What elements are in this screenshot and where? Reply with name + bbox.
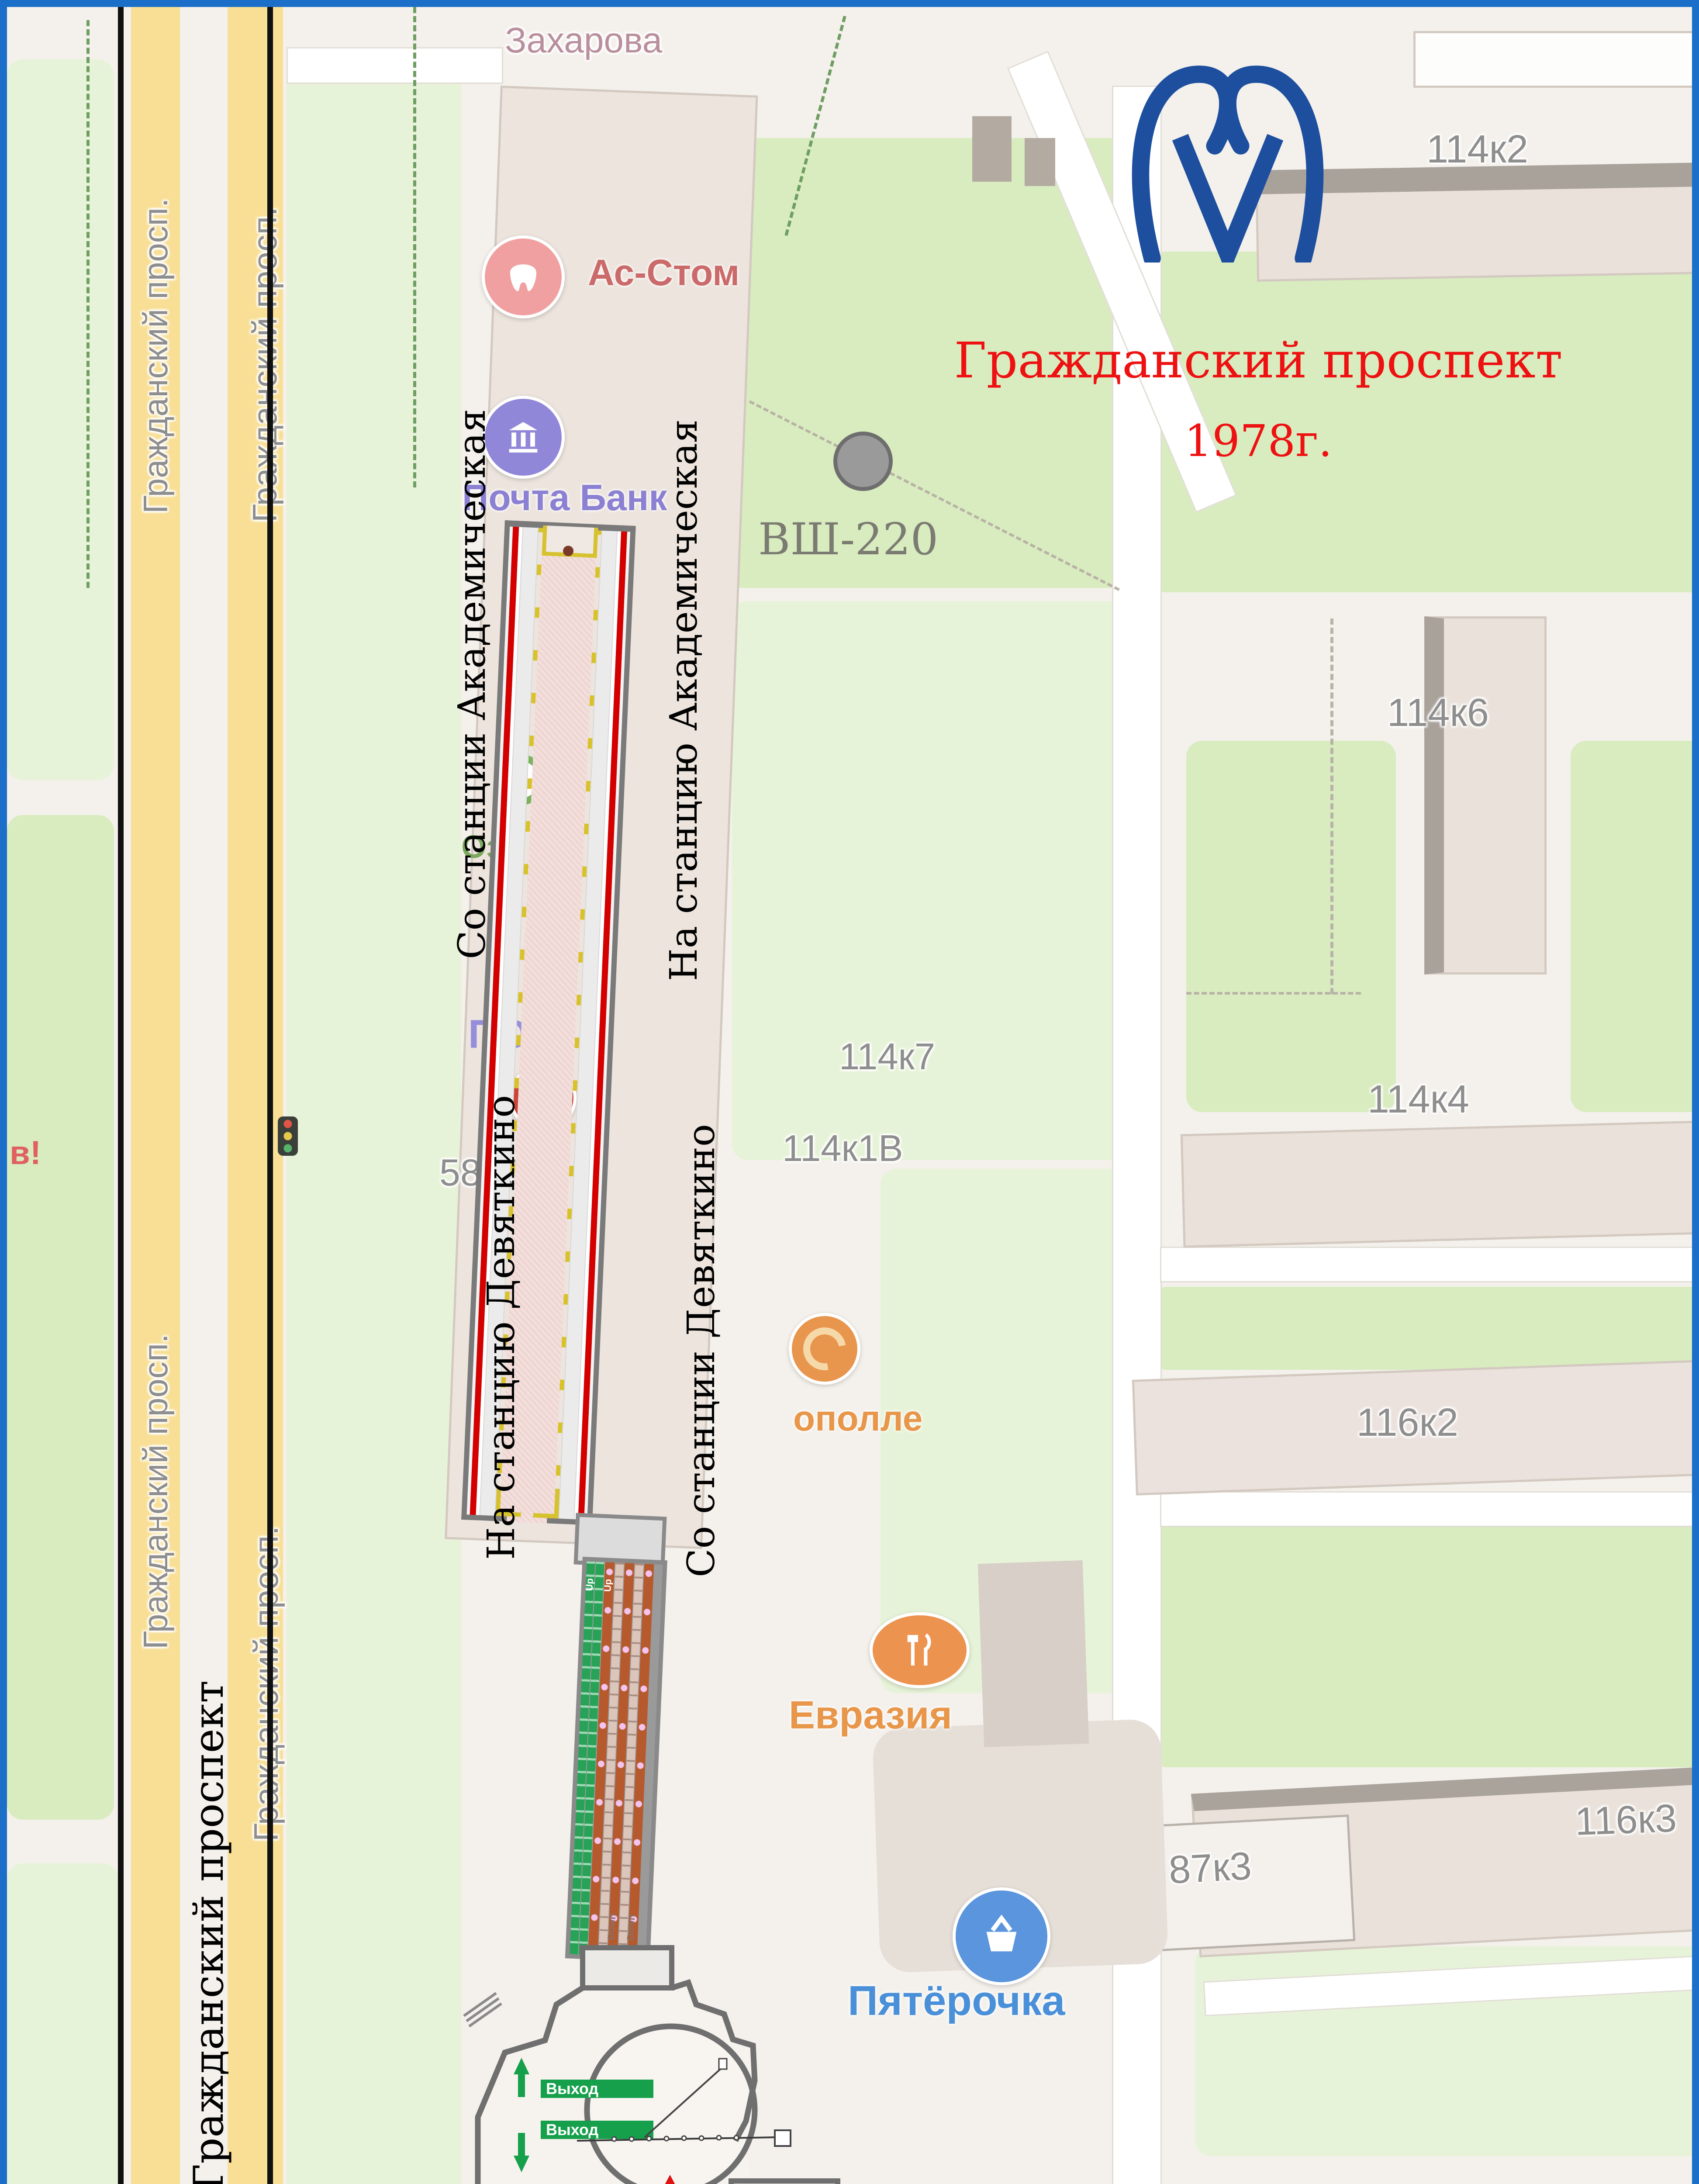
- traffic-light-icon: [278, 1116, 298, 1156]
- metro-logo: [1119, 64, 1337, 263]
- basket-icon: [977, 1912, 1026, 1960]
- park-area: [1186, 741, 1396, 1112]
- building-label-87k3: 87к3: [1167, 1844, 1253, 1893]
- park-area: [1151, 1523, 1699, 1767]
- opolle-icon: [789, 1313, 860, 1385]
- zakharova-road: [287, 47, 503, 84]
- ticket-hall-circle: [587, 2026, 755, 2184]
- building-label-116k2: 116к2: [1357, 1400, 1458, 1445]
- escalator-up-label: Up: [602, 1579, 614, 1592]
- park-area: [7, 1863, 118, 2184]
- exit-bar-lower-label: Выход: [546, 2121, 598, 2139]
- building-label-114k4: 114к4: [1367, 1077, 1469, 1122]
- street-label-grazhdansky-1: Гражданский просп.: [136, 77, 176, 514]
- boundary-dashed: [1330, 619, 1333, 994]
- evraziya-icon: [870, 1612, 970, 1688]
- pyaterochka-icon: [953, 1887, 1050, 1985]
- evraziya-label: Евразия: [789, 1693, 952, 1738]
- park-area: [1571, 741, 1699, 1112]
- shed: [1025, 138, 1055, 186]
- track-label-from-devyatkino: Со станции Девяткино: [680, 1160, 723, 1577]
- side-road: [1160, 1247, 1699, 1282]
- street-label-zakharova: Захарова: [505, 20, 662, 61]
- park-path-dashed: [1186, 992, 1361, 995]
- building-evraziya: [978, 1560, 1089, 1747]
- road-edge-line: [118, 7, 124, 2184]
- bank-icon: [504, 418, 542, 456]
- building-label-116k3: 116к3: [1574, 1796, 1677, 1845]
- vestibule-plan: Выход Выход Вход: [444, 1935, 859, 2184]
- building-label-114k1v: 114к1В: [782, 1127, 903, 1170]
- opolle-glyph: [795, 1319, 854, 1379]
- station-title: Гражданский проспект: [946, 332, 1571, 389]
- pyaterochka-label: Пятёрочка: [848, 1977, 1065, 2025]
- turnstile-booth: [775, 2130, 791, 2146]
- street-label-grazhdansky-4: Гражданский просп.: [246, 1387, 286, 1842]
- park-area: [7, 815, 114, 1820]
- park-area: [287, 81, 461, 2184]
- south-marking: [533, 1488, 559, 1518]
- track-label-to-akademicheskaya: На станцию Академическая: [662, 511, 706, 981]
- side-road: [1160, 1491, 1699, 1527]
- building-114k4: [1181, 1120, 1699, 1248]
- building-label-114k2: 114к2: [1426, 127, 1528, 172]
- tooth-icon: [504, 257, 543, 297]
- grazhdansky-annotation: Гражданский проспект: [185, 1711, 233, 2184]
- exit-bar-upper-label: Выход: [546, 2080, 598, 2098]
- as-stom-icon: [482, 235, 565, 318]
- building-white: [1413, 31, 1699, 88]
- vestibule-annex: [731, 2181, 838, 2184]
- boundary-dashed: [86, 20, 90, 588]
- park-area: [1151, 1287, 1699, 1370]
- guide-rail-post: [719, 2059, 727, 2069]
- street-label-grazhdansky-2: Гражданский просп.: [245, 64, 285, 522]
- fork-knife-icon: [901, 1631, 939, 1669]
- ramp-lines: [464, 1993, 501, 2026]
- boundary-dashed: [413, 7, 416, 487]
- escalator-machine-room: [583, 1948, 672, 1988]
- track-label-to-devyatkino: На станцию Девяткино: [480, 1143, 523, 1560]
- vent-shaft-icon: [833, 432, 893, 491]
- v-label-partial: в!: [10, 1134, 41, 1172]
- road-edge-line: [267, 7, 273, 2184]
- building-114k6: [1424, 616, 1547, 975]
- map-canvas: Гражданский просп. Гражданский просп. Гр…: [0, 0, 1699, 2184]
- building-label-114k7: 114к7: [839, 1036, 935, 1078]
- shed: [972, 116, 1012, 182]
- vent-shaft-label: ВШ-220: [758, 514, 938, 565]
- as-stom-label: Ас-Стом: [588, 252, 739, 294]
- opolle-label-partial: ополле: [793, 1398, 922, 1439]
- park-area: [7, 59, 114, 780]
- station-year: 1978г.: [946, 415, 1571, 467]
- track-label-from-akademicheskaya: Со станции Академическая: [450, 518, 494, 959]
- escalator-up-label: Up: [584, 1578, 595, 1591]
- pochta-bank-icon: [482, 396, 565, 479]
- street-label-grazhdansky-3: Гражданский просп.: [136, 1217, 176, 1649]
- building-label-114k6: 114к6: [1387, 691, 1489, 736]
- escalator-tunnel: Up Up Down Down: [565, 1557, 667, 1962]
